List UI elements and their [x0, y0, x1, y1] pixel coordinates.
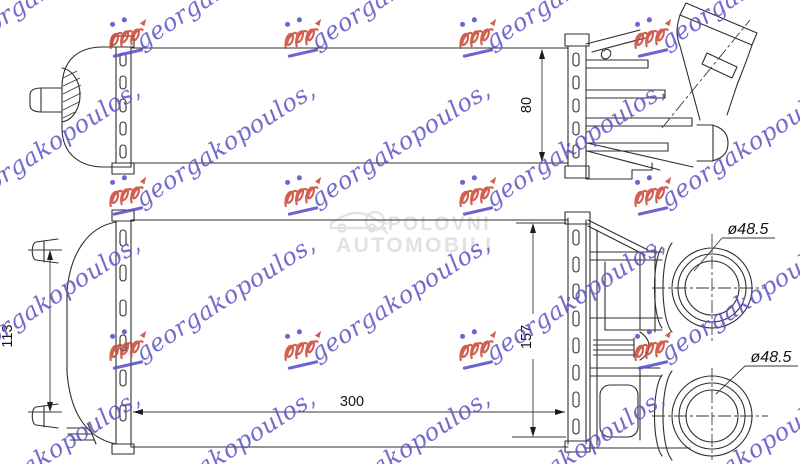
intercooler-technical-drawing: POLOVNI AUTOMOBILI: [0, 0, 800, 464]
dimension-300: 300: [133, 394, 565, 415]
dim-113-label: 113: [0, 324, 16, 347]
bracket-arms: [586, 30, 693, 179]
dimension-157: 157: [512, 223, 566, 437]
front-plate-slots-right: [573, 230, 579, 434]
side-view: 80: [30, 3, 757, 179]
dim-157-label: 157: [519, 325, 535, 349]
front-plate-slots-left: [120, 230, 126, 421]
dimension-113: 113: [0, 250, 62, 412]
side-plate-slots-right: [573, 53, 579, 158]
diameter-top-leader: ø48.5: [694, 221, 775, 271]
port-housing: [586, 220, 768, 460]
dim-top-port-label: ø48.5: [728, 221, 769, 238]
side-plate-slots-left: [120, 53, 126, 158]
dimension-80: 80: [519, 49, 545, 162]
dim-bottom-port-label: ø48.5: [751, 349, 792, 366]
turbo-duct: [662, 3, 757, 161]
rib-hatch: [63, 71, 81, 118]
bottom-bracket: [67, 424, 96, 444]
drawing-canvas: 80: [0, 0, 800, 464]
front-view: 113 157 300 ø4: [0, 210, 798, 460]
dim-80-label: 80: [519, 97, 535, 113]
dim-300-label: 300: [340, 394, 364, 410]
